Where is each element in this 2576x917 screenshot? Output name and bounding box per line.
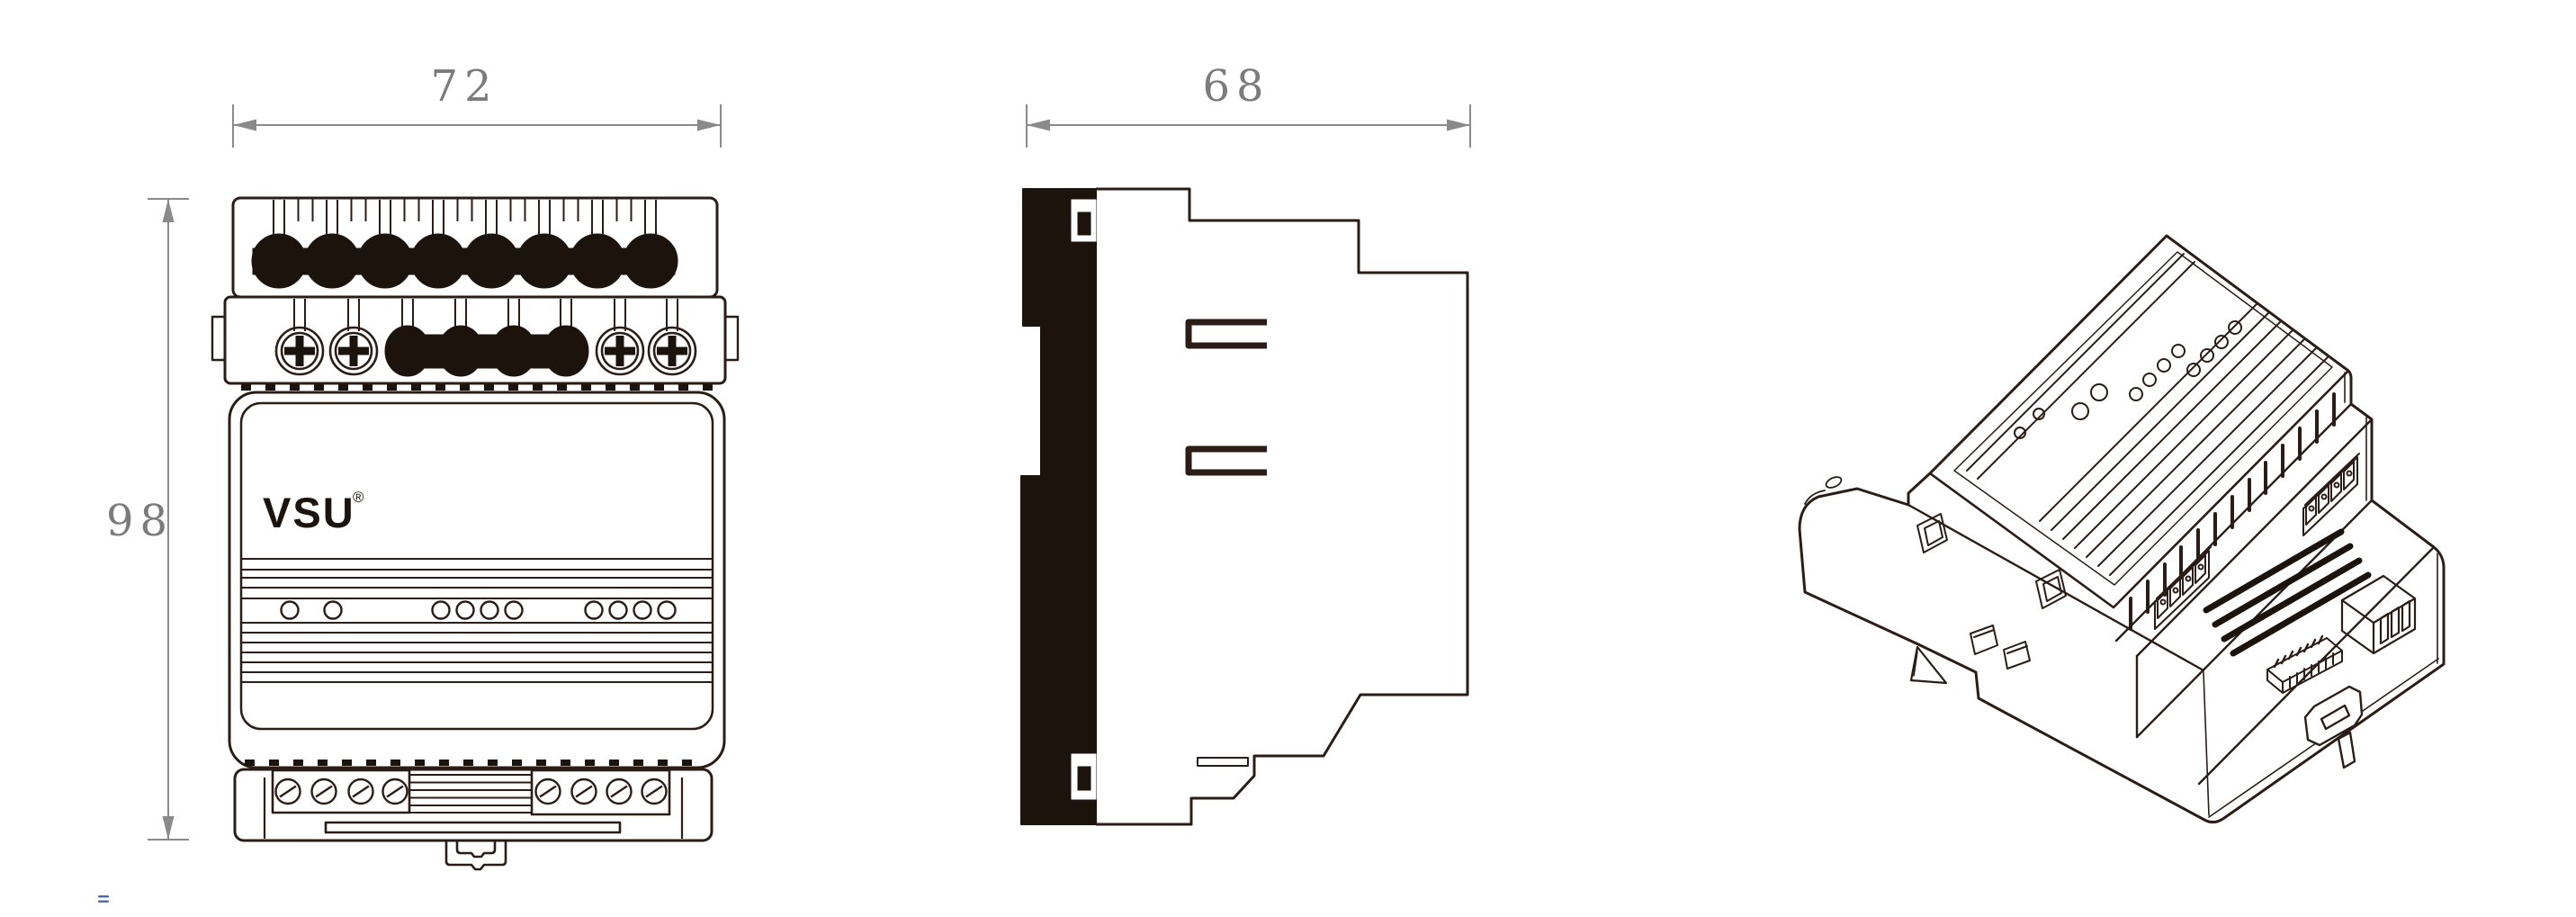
slotted-screw-icon xyxy=(536,779,561,804)
status-leds xyxy=(282,602,676,619)
terminal-contacts xyxy=(252,234,678,288)
bottom-vent-lines xyxy=(409,775,532,813)
slotted-screw-icon xyxy=(572,779,597,804)
terminal-wire-slots xyxy=(294,299,678,331)
din-rail-bar xyxy=(326,823,620,832)
side-view xyxy=(1021,189,1468,824)
dimension-height-label: 98 xyxy=(106,496,174,546)
led-indicator xyxy=(282,602,299,619)
right-screw-block xyxy=(532,770,669,814)
isometric-view xyxy=(1800,236,2444,823)
terminal-wire-slots xyxy=(274,200,656,234)
side-din-clip-detail xyxy=(1198,758,1248,766)
terminal-contacts xyxy=(385,326,588,376)
dimension-width-label: 72 xyxy=(430,61,498,112)
slotted-screw-icon xyxy=(607,779,632,804)
slotted-screw-icon xyxy=(383,779,408,804)
led-indicator xyxy=(586,602,603,619)
technical-drawing-page: 72 98 68 xyxy=(0,0,2576,917)
front-view: VSU ® xyxy=(212,198,738,869)
front-bottom-terminal-row xyxy=(235,769,712,869)
panel-vent-lines xyxy=(241,559,713,682)
terminal-busbar xyxy=(396,335,580,368)
side-terminal-column xyxy=(1021,189,1096,824)
arrow-left-icon xyxy=(233,120,256,131)
front-main-body: VSU ® xyxy=(229,392,724,768)
phillips-screw-icon xyxy=(649,328,696,374)
side-body-outline xyxy=(1096,189,1468,824)
din-clip-tab xyxy=(446,841,506,869)
led-indicator xyxy=(481,602,498,619)
side-terminal-notch-top xyxy=(1072,200,1096,241)
phillips-screw-icon xyxy=(276,328,323,374)
body-outline xyxy=(229,392,724,768)
slotted-screw-icon xyxy=(349,779,373,804)
front-top-terminal-row xyxy=(233,198,717,297)
dimension-depth-label: 68 xyxy=(1202,61,1270,112)
led-indicator xyxy=(457,602,474,619)
arrow-right-icon xyxy=(1447,120,1470,131)
arrow-down-icon xyxy=(163,816,175,840)
led-indicator xyxy=(325,602,342,619)
slotted-screw-icon xyxy=(276,779,301,804)
right-ear xyxy=(725,317,738,360)
side-terminal-notch-bottom xyxy=(1072,754,1096,799)
slotted-screw-icon xyxy=(312,779,337,804)
front-second-terminal-row xyxy=(212,297,738,383)
brand-logo: VSU xyxy=(263,489,355,536)
mounting-bracket-lower xyxy=(1189,449,1267,472)
dimension-height-98: 98 xyxy=(106,199,189,840)
phillips-screw-icon xyxy=(330,328,377,374)
arrow-left-icon xyxy=(1027,120,1050,131)
arrow-up-icon xyxy=(163,199,175,222)
led-indicator xyxy=(506,602,523,619)
mounting-bracket-upper xyxy=(1189,322,1267,346)
dimension-width-72: 72 xyxy=(233,61,721,148)
dimension-depth-68: 68 xyxy=(1027,61,1470,148)
led-indicator xyxy=(433,602,450,619)
left-ear xyxy=(212,317,225,360)
terminal-unit-gaps xyxy=(299,198,632,221)
led-indicator xyxy=(634,602,651,619)
front-panel xyxy=(241,403,713,729)
front-serration-bottom xyxy=(245,760,692,766)
left-screw-block xyxy=(273,770,409,813)
led-indicator xyxy=(610,602,627,619)
watermark-bar xyxy=(98,901,109,903)
drawing-canvas: 72 98 68 xyxy=(0,0,2576,917)
arrow-right-icon xyxy=(697,120,721,131)
terminal-busbar xyxy=(253,248,675,274)
watermark-accent xyxy=(98,895,109,903)
watermark-bar xyxy=(98,895,109,897)
registered-trademark-icon: ® xyxy=(353,489,364,506)
led-indicator xyxy=(659,602,676,619)
phillips-screw-icon xyxy=(597,328,643,374)
slotted-screw-icon xyxy=(642,779,667,804)
front-serration-top xyxy=(241,384,713,391)
